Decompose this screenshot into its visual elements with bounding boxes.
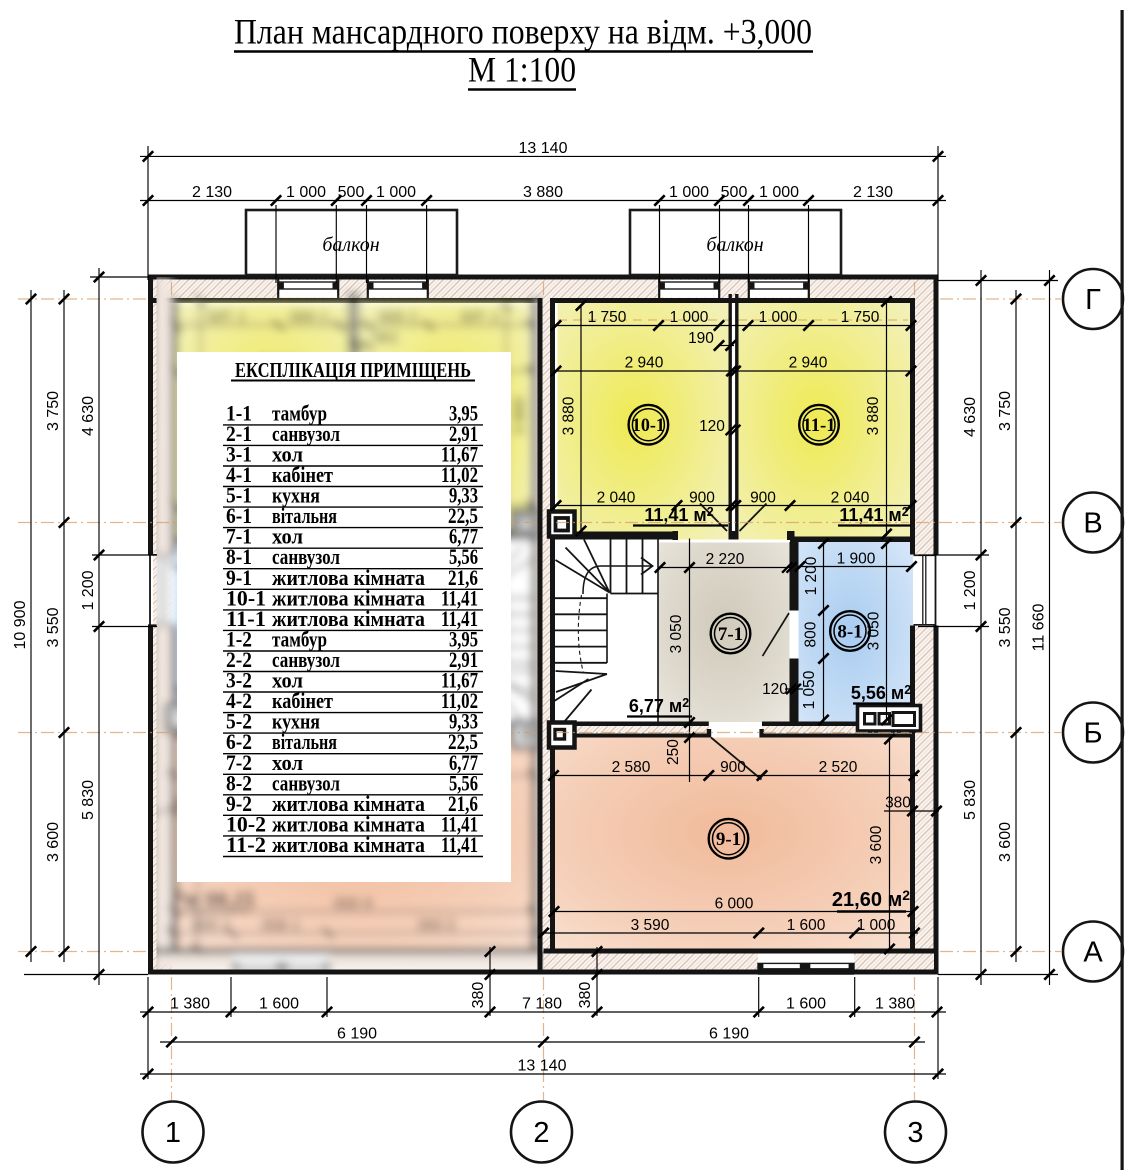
svg-text:11,41: 11,41: [441, 832, 478, 857]
svg-text:1 600: 1 600: [259, 996, 299, 1013]
svg-text:3 750: 3 750: [45, 391, 62, 431]
svg-text:13 140: 13 140: [519, 140, 568, 157]
svg-text:3 550: 3 550: [997, 607, 1014, 647]
svg-text:6 190: 6 190: [709, 1026, 749, 1043]
svg-text:1 000: 1 000: [286, 184, 326, 201]
svg-text:План мансардного поверху на ві: План мансардного поверху на відм. +3,000: [234, 12, 812, 52]
svg-text:балкон: балкон: [322, 234, 379, 256]
svg-text:3 600: 3 600: [45, 822, 62, 862]
svg-text:1 000: 1 000: [376, 184, 416, 201]
svg-text:1 600: 1 600: [786, 996, 826, 1013]
svg-text:3 750: 3 750: [997, 391, 1014, 431]
svg-text:2 130: 2 130: [192, 184, 232, 201]
svg-text:1: 1: [165, 1117, 181, 1149]
svg-text:380: 380: [577, 982, 594, 1009]
svg-text:1 380: 1 380: [170, 996, 210, 1013]
svg-text:11 660: 11 660: [1031, 604, 1048, 652]
svg-text:житлова кімната: житлова кімната: [272, 832, 425, 857]
svg-text:3 600: 3 600: [997, 822, 1014, 862]
svg-text:Г: Г: [1085, 284, 1101, 316]
svg-text:4 630: 4 630: [962, 397, 979, 437]
svg-text:6 190: 6 190: [337, 1026, 377, 1043]
svg-text:Б: Б: [1083, 718, 1102, 750]
svg-text:2: 2: [533, 1117, 549, 1149]
svg-text:ЕКСПЛІКАЦІЯ ПРИМІЩЕНЬ: ЕКСПЛІКАЦІЯ ПРИМІЩЕНЬ: [235, 358, 471, 382]
svg-text:500: 500: [721, 184, 748, 201]
svg-text:13 140: 13 140: [518, 1058, 567, 1075]
svg-text:10 900: 10 900: [12, 600, 29, 649]
svg-text:11-2: 11-2: [226, 832, 266, 857]
svg-text:2 130: 2 130: [853, 184, 893, 201]
svg-text:500: 500: [338, 184, 365, 201]
svg-text:4 630: 4 630: [80, 396, 97, 436]
svg-text:1 200: 1 200: [80, 570, 97, 610]
svg-text:А: А: [1083, 937, 1103, 969]
svg-text:балкон: балкон: [706, 234, 763, 256]
svg-text:380: 380: [470, 982, 487, 1009]
svg-text:1 380: 1 380: [875, 996, 915, 1013]
svg-text:1 000: 1 000: [759, 184, 799, 201]
svg-text:3 880: 3 880: [523, 184, 563, 201]
svg-text:1 000: 1 000: [669, 184, 709, 201]
svg-text:3 550: 3 550: [45, 607, 62, 647]
svg-text:7 180: 7 180: [522, 996, 562, 1013]
svg-text:5 830: 5 830: [962, 780, 979, 820]
svg-text:5 830: 5 830: [80, 780, 97, 820]
svg-text:3: 3: [907, 1117, 923, 1149]
svg-text:1 200: 1 200: [962, 570, 979, 610]
svg-text:В: В: [1083, 508, 1102, 540]
svg-text:М 1:100: М 1:100: [468, 50, 576, 90]
